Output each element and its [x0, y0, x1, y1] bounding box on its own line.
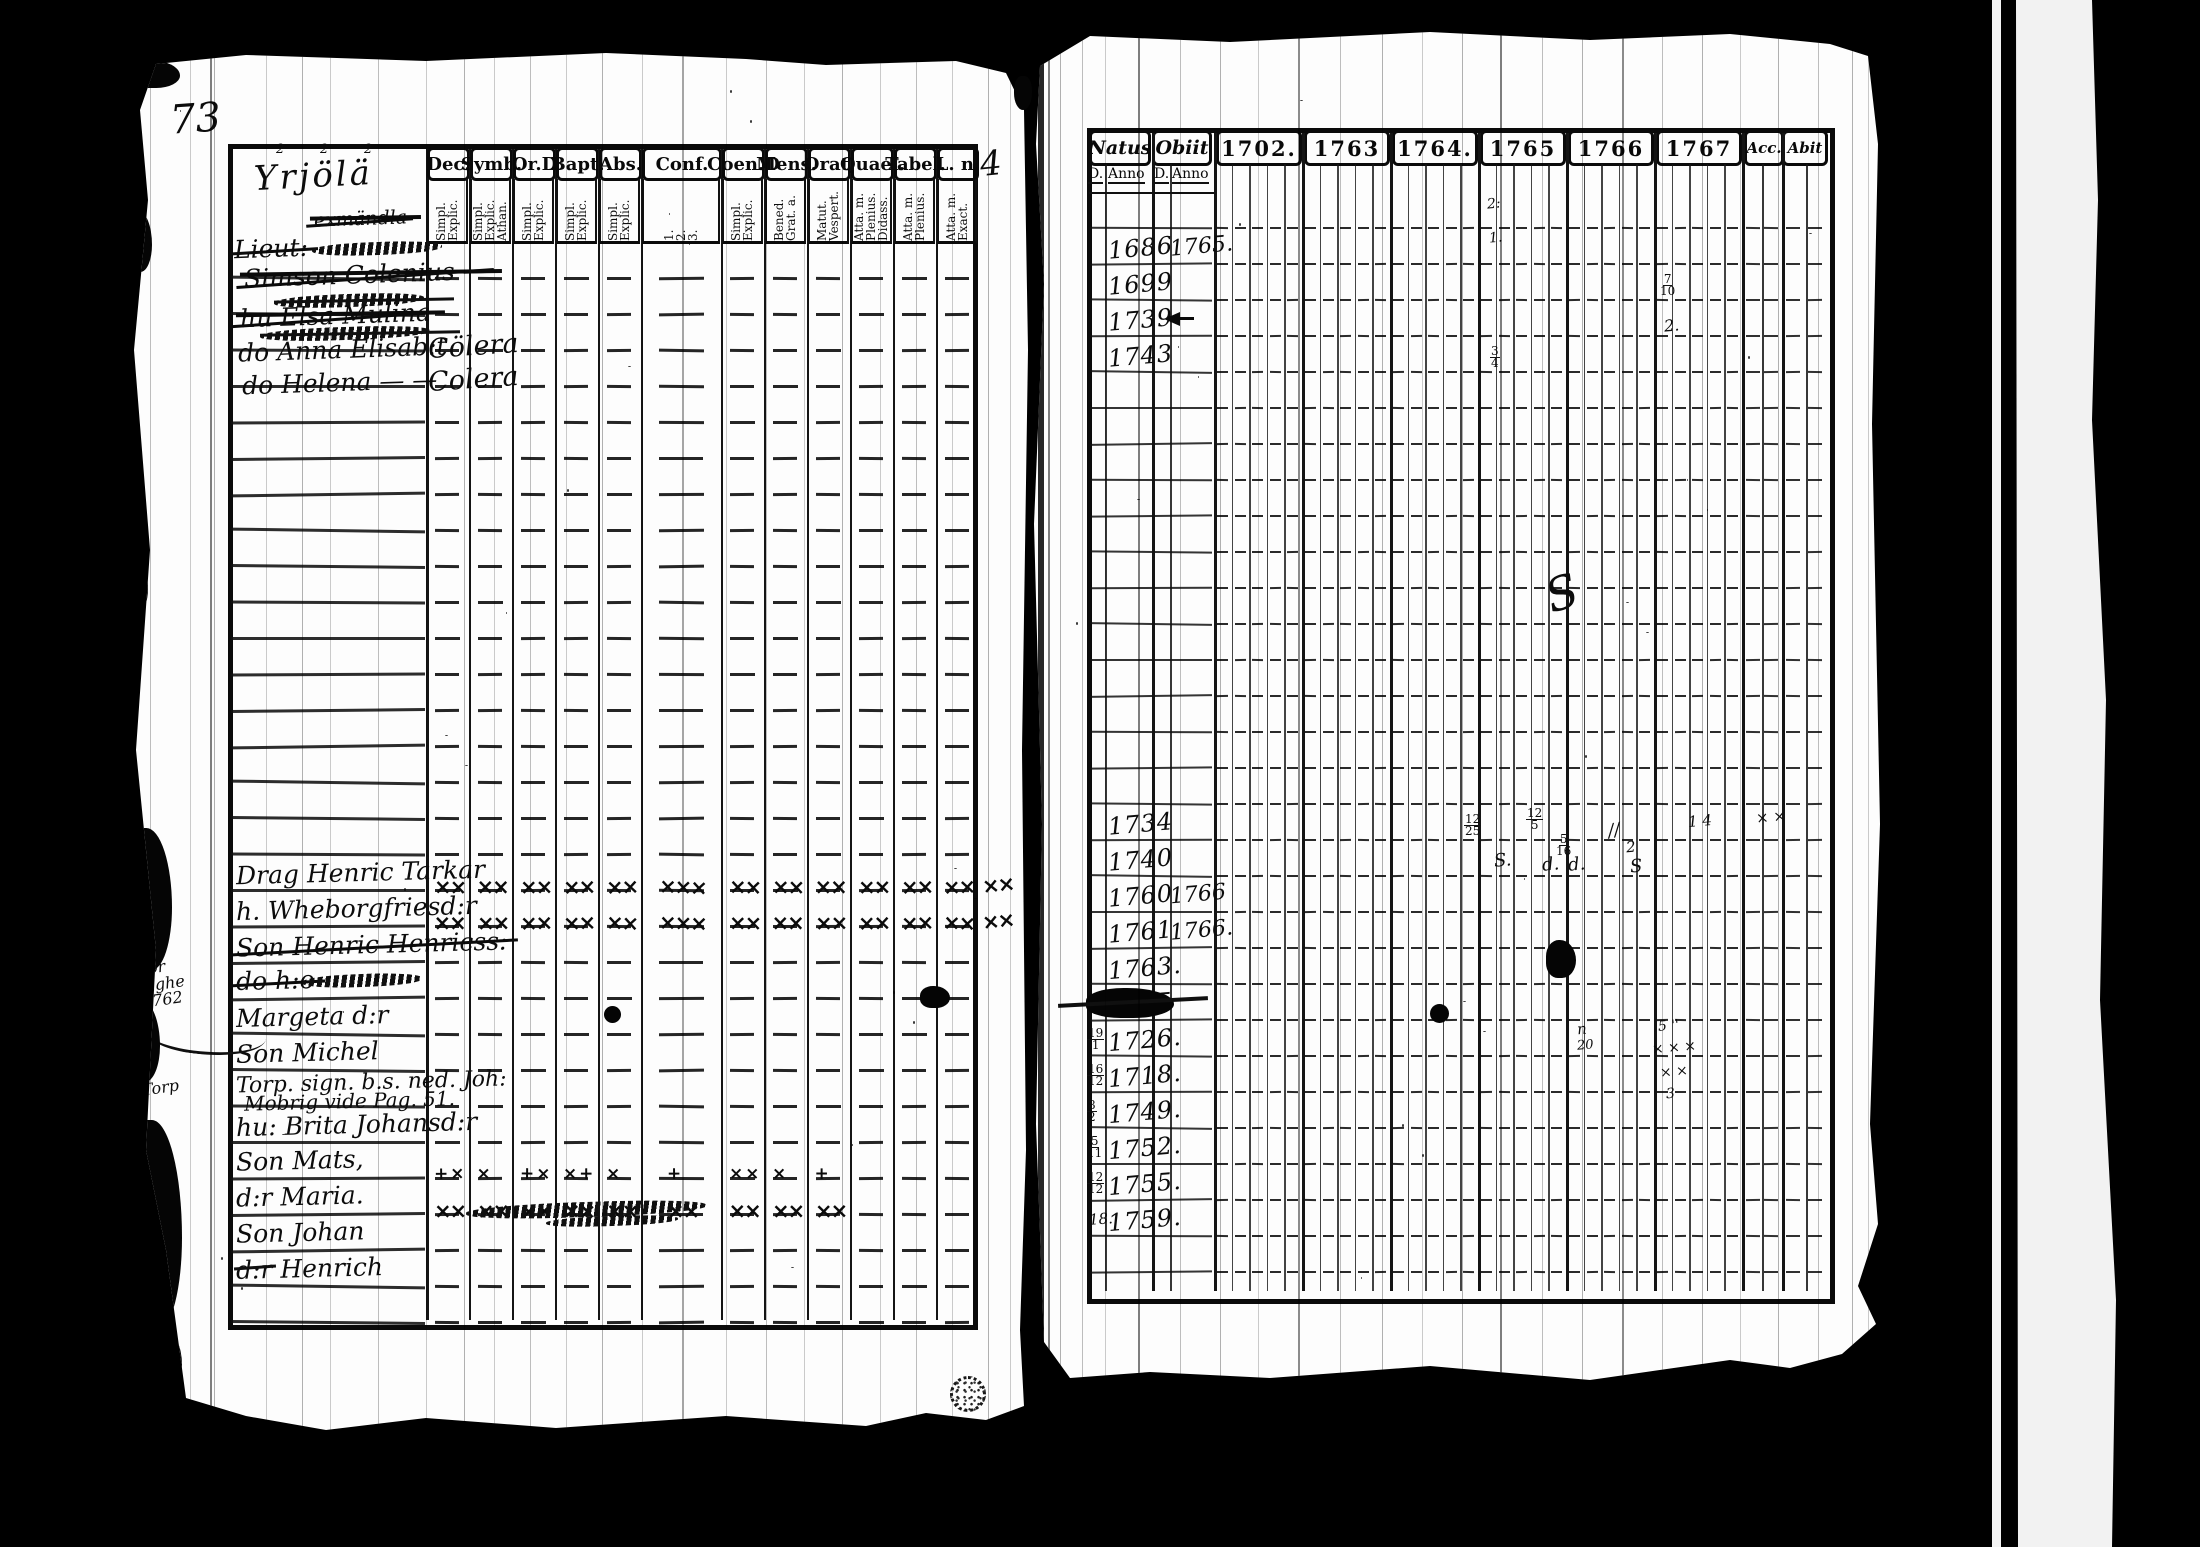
- row-dash: [816, 493, 840, 496]
- row-dash: [1569, 335, 1580, 337]
- row-dash: [1604, 1091, 1615, 1093]
- row-dash: [1463, 947, 1474, 949]
- row-dash: [659, 781, 704, 784]
- row-dash: [564, 961, 588, 964]
- row-dash: [1639, 767, 1650, 769]
- row-dash: [1764, 407, 1778, 409]
- row-dash: [816, 385, 840, 388]
- row-dash: [1287, 911, 1298, 913]
- year-subline: [1355, 164, 1356, 1291]
- row-dash: [1786, 263, 1800, 265]
- row-dash: [1764, 1163, 1778, 1165]
- row-dash: [1287, 695, 1298, 697]
- row-dash: [659, 961, 704, 964]
- scan-streak: [426, 50, 427, 1450]
- row-dash: [1587, 911, 1598, 913]
- row-dash: [607, 349, 631, 352]
- row-dash: [1463, 1163, 1474, 1165]
- communion-x-marks: ×: [605, 1164, 617, 1184]
- row-dash: [1270, 659, 1281, 661]
- speckle: [1422, 1154, 1424, 1157]
- row-dash: [1710, 875, 1721, 877]
- row-dash: [1393, 983, 1404, 985]
- row-dash: [478, 997, 502, 1000]
- row-dash: [1358, 803, 1369, 805]
- row-dash: [816, 637, 840, 640]
- row-dash: [1481, 1055, 1492, 1057]
- row-dash: [1710, 911, 1721, 913]
- row-dash: [1340, 479, 1351, 481]
- row-dash: [659, 1141, 704, 1144]
- row-dash: [1340, 1235, 1351, 1237]
- row-dash: [521, 1033, 545, 1036]
- row-dash: [607, 745, 631, 748]
- row-dash: [1710, 731, 1721, 733]
- communion-x-marks: ××: [942, 910, 974, 935]
- row-dash: [1463, 1127, 1474, 1129]
- row-dash: [1675, 695, 1686, 697]
- row-dash: [1375, 947, 1386, 949]
- row-dash: [1764, 1127, 1778, 1129]
- row-dash: [1727, 371, 1738, 373]
- row-dash: [1534, 335, 1545, 337]
- row-dash: [1764, 1019, 1778, 1021]
- column-sublabel: Simpl.: [731, 179, 742, 241]
- entry-name: d:r Maria.: [236, 1180, 364, 1212]
- row-dash: [1710, 335, 1721, 337]
- edge-blot: [126, 828, 172, 970]
- row-dash: [1727, 299, 1738, 301]
- column-sublabel: Grat. a.: [786, 179, 797, 241]
- row-dash: [902, 529, 926, 532]
- row-dash: [1727, 803, 1738, 805]
- row-dash: [1323, 947, 1334, 949]
- year-subline: [1724, 164, 1725, 1291]
- row-dash: [1551, 371, 1562, 373]
- row-dash: [659, 493, 704, 496]
- row-dash: [1287, 1199, 1298, 1201]
- row-dash: [521, 1321, 545, 1324]
- row-dash: [1270, 1091, 1281, 1093]
- row-dash: [1551, 983, 1562, 985]
- row-dash: [1411, 623, 1422, 625]
- row-dash: [1411, 767, 1422, 769]
- row-dash: [1808, 587, 1822, 589]
- row-dash: [1217, 839, 1228, 841]
- scan-streak: [190, 50, 191, 1450]
- row-dash: [1235, 1235, 1246, 1237]
- row-dash: [1710, 1163, 1721, 1165]
- row-dash: [1375, 695, 1386, 697]
- row-dash: [1393, 695, 1404, 697]
- natus-day: 1612: [1087, 1064, 1104, 1087]
- row-dash: [564, 493, 588, 496]
- row-dash: [1340, 623, 1351, 625]
- row-dash: [902, 745, 926, 748]
- row-dash: [1323, 1019, 1334, 1021]
- speckle: [1137, 499, 1140, 500]
- row-dash: [1534, 263, 1545, 265]
- row-dash: [1446, 731, 1457, 733]
- year-subline: [1619, 164, 1620, 1291]
- row-dash: [1235, 227, 1246, 229]
- row-dash: [1551, 1055, 1562, 1057]
- row-dash: [1375, 731, 1386, 733]
- row-dash: [816, 313, 840, 316]
- row-dash: [1340, 1163, 1351, 1165]
- row-dash: [1393, 1199, 1404, 1201]
- row-dash: [478, 421, 502, 424]
- row-dash: [1727, 335, 1738, 337]
- row-dash: [730, 1141, 754, 1144]
- row-dash: [730, 1321, 754, 1324]
- entry-name: Lieut:: [234, 233, 309, 265]
- row-dash: [564, 1069, 588, 1072]
- row-dash: [1710, 515, 1721, 517]
- row-dash: [1287, 1271, 1298, 1273]
- row-dash: [1604, 263, 1615, 265]
- row-dash: [1587, 443, 1598, 445]
- column-label: Bapt.: [550, 154, 604, 175]
- row-dash: [435, 565, 459, 568]
- row-dash: [1764, 335, 1778, 337]
- edge-blot: [128, 1120, 182, 1330]
- row-dash: [1551, 515, 1562, 517]
- scan-streak: [1382, 30, 1383, 1430]
- scan-streak: [1740, 30, 1741, 1430]
- row-dash: [1675, 767, 1686, 769]
- row-dash: [1411, 299, 1422, 301]
- row-dash: [902, 1321, 926, 1324]
- row-dash: [1639, 479, 1650, 481]
- row-dash: [1428, 875, 1439, 877]
- row-dash: [773, 493, 797, 496]
- speckle: [1687, 479, 1688, 481]
- scan-streak: [682, 50, 684, 1450]
- row-dash: [1428, 587, 1439, 589]
- row-dash: [1534, 299, 1545, 301]
- row-dash: [1808, 443, 1822, 445]
- row-dash: [1375, 623, 1386, 625]
- row-dash: [1727, 1055, 1738, 1057]
- row-dash: [1375, 803, 1386, 805]
- speckle: [893, 991, 895, 994]
- row-dash: [659, 385, 704, 388]
- row-dash: [1746, 479, 1760, 481]
- row-dash: [1551, 1127, 1562, 1129]
- edge-blot: [150, 1330, 182, 1392]
- row-dash: [773, 565, 797, 568]
- row-dash: [659, 1033, 704, 1036]
- row-dash: [521, 421, 545, 424]
- row-dash: [521, 853, 545, 856]
- row-dash: [1639, 947, 1650, 949]
- natus-year: 1740: [1107, 843, 1174, 877]
- row-dash: [659, 457, 704, 460]
- row-dash: [1551, 1271, 1562, 1273]
- row-dash: [1217, 1271, 1228, 1273]
- row-dash: [730, 637, 754, 640]
- row-dash: [521, 781, 545, 784]
- row-dash: [1375, 659, 1386, 661]
- row-dash: [1786, 335, 1800, 337]
- scan-streak: [1060, 30, 1061, 1430]
- row-dash: [1305, 659, 1316, 661]
- row-dash: [1639, 839, 1650, 841]
- row-dash: [1287, 1019, 1298, 1021]
- scan-streak: [1105, 30, 1106, 1430]
- communion-x-marks: ××: [605, 910, 637, 935]
- speckle: [1463, 1001, 1466, 1002]
- row-dash: [730, 961, 754, 964]
- row-dash: [1358, 659, 1369, 661]
- row-dash: [1428, 911, 1439, 913]
- column-line: [469, 149, 471, 1320]
- row-dash: [1675, 983, 1686, 985]
- row-dash: [1323, 695, 1334, 697]
- column-sublabel: Vespert.: [829, 179, 840, 241]
- row-dash: [1270, 299, 1281, 301]
- communion-x-marks: ××: [477, 875, 508, 899]
- row-dash: [1516, 1271, 1527, 1273]
- row-dash: [1375, 227, 1386, 229]
- row-dash: [1393, 1235, 1404, 1237]
- row-dash: [1481, 947, 1492, 949]
- communion-x-marks: ××: [772, 911, 803, 935]
- row-dash: [1786, 911, 1800, 913]
- row-dash: [1639, 803, 1650, 805]
- row-dash: [1587, 407, 1598, 409]
- row-dash: [1287, 299, 1298, 301]
- row-dash: [1393, 479, 1404, 481]
- row-dash: [1764, 1235, 1778, 1237]
- row-dash: [1340, 1127, 1351, 1129]
- row-dash: [1428, 659, 1439, 661]
- communion-x-marks: ×: [771, 1164, 784, 1184]
- row-dash: [1340, 983, 1351, 985]
- row-dash: [1587, 1127, 1598, 1129]
- row-dash: [945, 457, 969, 460]
- row-dash: [1411, 551, 1422, 553]
- entry-name: exmändla: [314, 206, 408, 231]
- row-dash: [1746, 1019, 1760, 1021]
- row-dash: [1323, 587, 1334, 589]
- natus-year: 1743: [1107, 339, 1174, 373]
- row-dash: [1428, 443, 1439, 445]
- row-dash: [1287, 443, 1298, 445]
- row-dash: [1323, 1271, 1334, 1273]
- row-dash: [902, 961, 926, 964]
- row-dash: [945, 1033, 969, 1036]
- row-dash: [1551, 263, 1562, 265]
- year-label: 1763: [1314, 136, 1380, 161]
- row-dash: [1217, 803, 1228, 805]
- row-dash: [1569, 1055, 1580, 1057]
- row-dash: [435, 457, 459, 460]
- row-dash: [1358, 875, 1369, 877]
- row-dash: [1587, 479, 1598, 481]
- row-dash: [564, 781, 588, 784]
- row-dash: [1534, 623, 1545, 625]
- row-dash: [1393, 911, 1404, 913]
- column-subheader-1: Athan.Explic.Simpl.: [470, 179, 511, 244]
- row-dash: [1393, 371, 1404, 373]
- row-dash: [607, 1141, 631, 1144]
- row-dash: [607, 637, 631, 640]
- row-dash: [1764, 479, 1778, 481]
- film-edge-sliver: [1992, 0, 2001, 1547]
- row-dash: [1516, 947, 1527, 949]
- scan-streak: [214, 50, 215, 1450]
- row-dash: [1235, 1199, 1246, 1201]
- row-dash: [1323, 443, 1334, 445]
- row-dash: [478, 1249, 502, 1252]
- row-dash: [1764, 1271, 1778, 1273]
- row-dash: [1534, 1163, 1545, 1165]
- scan-streak: [1868, 30, 1869, 1430]
- row-dash: [816, 529, 840, 532]
- speckle: [1748, 356, 1750, 359]
- row-dash: [1358, 299, 1369, 301]
- scan-streak: [1298, 30, 1300, 1430]
- row-dash: [1481, 875, 1492, 877]
- row-dash: [1305, 875, 1316, 877]
- row-dash: [816, 961, 840, 964]
- row-dash: [1393, 227, 1404, 229]
- row-dash: [1569, 407, 1580, 409]
- left-page: 73 Dec.Explic.Simpl.Symb.Athan.Explic.Si…: [126, 50, 1028, 1450]
- row-dash: [902, 277, 926, 280]
- row-dash: [1639, 623, 1650, 625]
- row-dash: [1569, 731, 1580, 733]
- row-dash: [1675, 515, 1686, 517]
- row-dash: [1551, 1019, 1562, 1021]
- row-dash: [1587, 1055, 1598, 1057]
- row-dash: [1305, 227, 1316, 229]
- row-dash: [1746, 731, 1760, 733]
- row-dash: [659, 1249, 704, 1252]
- row-dash: [1604, 983, 1615, 985]
- row-dash: [1587, 1235, 1598, 1237]
- row-dash: [1428, 983, 1439, 985]
- row-dash: [1235, 551, 1246, 553]
- row-dash: [1323, 1235, 1334, 1237]
- row-dash: [1393, 803, 1404, 805]
- row-dash: [902, 1177, 926, 1180]
- row-dash: [659, 997, 704, 1000]
- year-subline: [1584, 164, 1585, 1291]
- row-dash: [1411, 1163, 1422, 1165]
- row-dash: [1675, 263, 1686, 265]
- row-dash: [1808, 1271, 1822, 1273]
- row-dash: [1446, 623, 1457, 625]
- speckle: [1646, 632, 1649, 633]
- row-dash: [1534, 479, 1545, 481]
- row-dash: [1516, 1091, 1527, 1093]
- row-dash: [607, 961, 631, 964]
- natus-year: 1699: [1107, 267, 1174, 301]
- speckle: [730, 90, 732, 93]
- row-dash: [1340, 1271, 1351, 1273]
- row-dash: [1764, 947, 1778, 949]
- row-dash: [1323, 803, 1334, 805]
- row-dash: [1587, 983, 1598, 985]
- row-dash: [1639, 263, 1650, 265]
- row-dash: [1358, 335, 1369, 337]
- ink-blot: [920, 986, 950, 1008]
- stray-mark: 5 '': [1657, 1017, 1679, 1035]
- row-dash: [730, 1033, 754, 1036]
- row-dash: [945, 601, 969, 604]
- row-dash: [521, 997, 545, 1000]
- natus-day: 511: [1087, 1136, 1102, 1159]
- row-dash: [1786, 479, 1800, 481]
- year-subline: [1284, 164, 1285, 1291]
- row-dash: [1428, 371, 1439, 373]
- row-dash: [1411, 1127, 1422, 1129]
- scan-streak: [330, 50, 331, 1450]
- row-dash: [478, 1285, 502, 1288]
- row-dash: [1340, 731, 1351, 733]
- row-dash: [773, 313, 797, 316]
- row-dash: [1463, 407, 1474, 409]
- row-dash: [659, 709, 704, 712]
- scan-streak: [1622, 30, 1624, 1430]
- scan-streak: [1582, 30, 1583, 1430]
- year-subline: [1689, 164, 1690, 1291]
- row-dash: [1710, 1055, 1721, 1057]
- row-dash: [1587, 227, 1598, 229]
- row-dash: [1808, 515, 1822, 517]
- row-dash: [1786, 659, 1800, 661]
- scan-streak: [1340, 30, 1341, 1430]
- row-dash: [435, 529, 459, 532]
- row-dash: [1358, 1235, 1369, 1237]
- row-dash: [435, 637, 459, 640]
- stray-mark: × ×: [1755, 807, 1786, 828]
- column-sublabel: 3.: [688, 179, 699, 241]
- row-dash: [1393, 551, 1404, 553]
- row-dash: [1270, 875, 1281, 877]
- row-dash: [1323, 1091, 1334, 1093]
- row-dash: [773, 781, 797, 784]
- row-dash: [1710, 371, 1721, 373]
- column-line-heavy: [1214, 133, 1217, 1291]
- row-dash: [1393, 839, 1404, 841]
- row-dash: [816, 349, 840, 352]
- row-dash: [1305, 1163, 1316, 1165]
- row-dash: [1358, 1019, 1369, 1021]
- row-dash: [1551, 1091, 1562, 1093]
- row-dash: [1786, 947, 1800, 949]
- sub-d-label: D.: [1088, 166, 1103, 184]
- stray-mark: d.: [1567, 853, 1586, 875]
- row-dash: [1727, 407, 1738, 409]
- row-dash: [521, 313, 545, 316]
- row-dash: [435, 601, 459, 604]
- speckle: [628, 366, 631, 367]
- row-dash: [1323, 911, 1334, 913]
- row-dash: [1323, 371, 1334, 373]
- row-dash: [1411, 1235, 1422, 1237]
- row-dash: [1710, 623, 1721, 625]
- row-dash: [1516, 875, 1527, 877]
- row-dash: [1287, 335, 1298, 337]
- row-dash: [1446, 227, 1457, 229]
- row-dash: [1727, 911, 1738, 913]
- row-dash: [1534, 911, 1545, 913]
- row-dash: [1639, 551, 1650, 553]
